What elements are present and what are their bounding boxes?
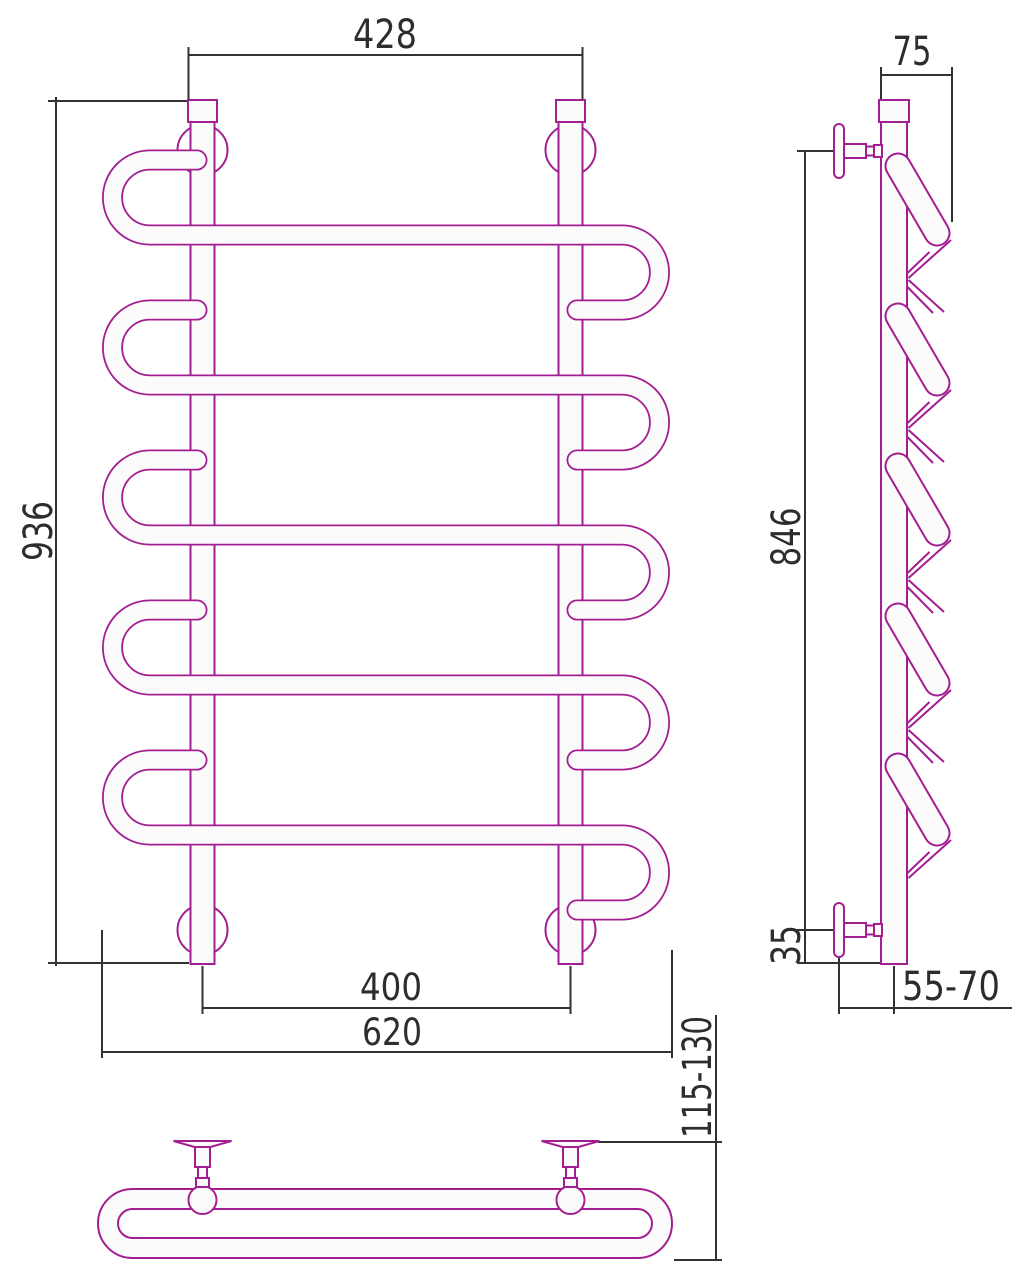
side-rail-top-cap — [879, 100, 909, 122]
bracket-neck — [866, 926, 874, 935]
bottom-view — [98, 1141, 672, 1258]
dim-label-rail-spacing: 400 — [360, 966, 422, 1009]
dim-label-top-width: 428 — [353, 12, 417, 58]
dim-label-height: 936 — [16, 501, 62, 561]
bottom-rail-section — [189, 1186, 217, 1214]
bottom-bracket-neck — [566, 1167, 575, 1178]
front-view — [113, 100, 660, 964]
bottom-bracket-collar — [196, 1178, 209, 1187]
bracket-arm — [844, 144, 866, 158]
dim-label-mount-height: 846 — [764, 508, 810, 567]
bracket-flange — [834, 903, 844, 957]
bottom-bracket-stem — [195, 1147, 210, 1167]
technical-drawing: 428 936 400 620 115-130 75 846 35 55-70 — [0, 0, 1019, 1280]
rail-top-cap — [556, 100, 585, 122]
bottom-bracket-neck — [198, 1167, 207, 1178]
side-return-edge — [909, 540, 952, 578]
bottom-rail-section — [557, 1186, 585, 1214]
side-return-edge — [909, 840, 952, 878]
side-return-edge — [909, 390, 952, 428]
bracket-arm — [844, 923, 866, 937]
dimension-labels: 428 936 400 620 115-130 75 846 35 55-70 — [16, 12, 1000, 1138]
side-return-edge — [909, 240, 952, 278]
side-view — [834, 100, 951, 964]
dim-label-depth-top: 75 — [893, 29, 932, 75]
drawing-canvas: 428 936 400 620 115-130 75 846 35 55-70 — [0, 0, 1019, 1280]
dim-label-bottom-offset: 35 — [764, 925, 810, 965]
bracket-flange — [834, 124, 844, 178]
dim-label-depth-range: 115-130 — [675, 1016, 721, 1138]
bottom-bracket-collar — [564, 1178, 577, 1187]
bracket-collar — [874, 145, 882, 157]
side-return-edge — [909, 690, 952, 728]
bracket-neck — [866, 147, 874, 156]
bottom-bracket-stem — [563, 1147, 578, 1167]
bracket-collar — [874, 924, 882, 936]
dim-label-overall-width: 620 — [362, 1011, 422, 1054]
dim-label-wall-clearance: 55-70 — [902, 964, 1000, 1010]
side-rail — [881, 100, 907, 964]
rail-top-cap — [188, 100, 217, 122]
